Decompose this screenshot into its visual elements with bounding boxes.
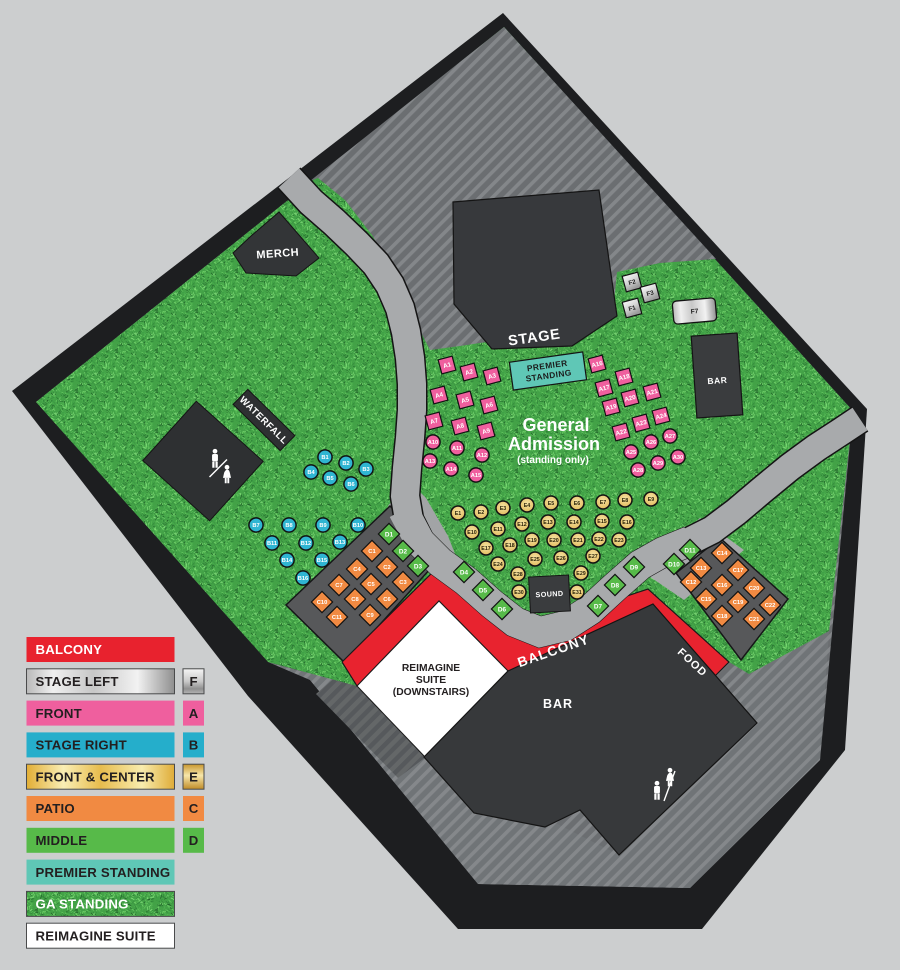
svg-text:E18: E18 [505,543,514,549]
svg-text:(standing only): (standing only) [517,455,589,466]
svg-text:General: General [522,415,589,435]
svg-text:B9: B9 [319,523,326,529]
svg-text:E14: E14 [569,520,578,526]
svg-text:C21: C21 [749,617,760,623]
svg-text:B5: B5 [326,476,333,482]
svg-text:A: A [189,706,199,721]
svg-text:E7: E7 [600,500,607,506]
svg-text:SOUND: SOUND [535,589,563,599]
svg-text:C18: C18 [717,614,728,620]
svg-text:C20: C20 [749,586,760,592]
svg-text:C14: C14 [717,551,728,557]
svg-text:C15: C15 [701,597,712,603]
svg-text:REIMAGINE: REIMAGINE [402,663,460,674]
svg-text:D: D [189,833,199,848]
svg-text:FRONT: FRONT [36,706,82,721]
svg-text:C9: C9 [366,613,374,619]
svg-text:E25: E25 [530,557,539,563]
svg-text:B11: B11 [267,541,277,547]
svg-text:C12: C12 [686,580,697,586]
svg-text:BALCONY: BALCONY [36,642,103,657]
svg-text:SUITE: SUITE [416,675,446,686]
svg-text:D2: D2 [399,548,408,555]
svg-text:D6: D6 [498,606,507,613]
svg-text:D4: D4 [460,569,469,576]
svg-text:C2: C2 [383,565,390,571]
svg-text:BAR: BAR [543,697,573,711]
svg-text:E: E [189,769,198,784]
svg-text:C13: C13 [696,566,707,572]
svg-text:E26: E26 [556,556,565,562]
svg-text:D11: D11 [684,547,696,554]
svg-text:A29: A29 [653,461,663,467]
svg-text:E22: E22 [594,537,603,543]
svg-text:B14: B14 [282,558,293,564]
svg-text:D7: D7 [594,603,603,610]
svg-text:C5: C5 [367,582,375,588]
svg-text:B12: B12 [301,541,311,547]
svg-text:C11: C11 [332,615,343,621]
svg-text:BAR: BAR [707,375,728,386]
svg-text:C10: C10 [317,600,328,606]
svg-text:FRONT & CENTER: FRONT & CENTER [36,769,156,784]
svg-text:C19: C19 [733,600,744,606]
svg-text:E2: E2 [478,510,485,516]
svg-text:STAGE RIGHT: STAGE RIGHT [36,738,127,753]
svg-text:E11: E11 [493,527,502,533]
svg-text:E15: E15 [597,519,606,525]
svg-text:A27: A27 [665,434,675,440]
svg-text:E6: E6 [574,501,581,507]
svg-text:Admission: Admission [508,434,600,454]
svg-text:F: F [189,674,197,689]
svg-text:E12: E12 [517,522,526,528]
svg-text:C8: C8 [351,597,359,603]
svg-text:E31: E31 [572,590,581,596]
svg-text:C6: C6 [383,597,391,603]
svg-text:C: C [189,801,199,816]
svg-text:C17: C17 [733,568,744,574]
svg-text:(DOWNSTAIRS): (DOWNSTAIRS) [393,687,469,698]
svg-text:PREMIER STANDING: PREMIER STANDING [36,865,171,880]
svg-text:PATIO: PATIO [36,801,75,816]
svg-text:A30: A30 [673,455,683,461]
svg-text:E3: E3 [500,506,507,512]
svg-text:E19: E19 [527,538,536,544]
svg-text:A15: A15 [471,473,481,479]
svg-text:D10: D10 [668,561,680,568]
svg-text:E21: E21 [573,538,582,544]
svg-text:E13: E13 [543,520,552,526]
svg-text:B2: B2 [342,461,349,467]
svg-text:C16: C16 [717,583,728,589]
svg-text:B6: B6 [347,482,354,488]
svg-text:D3: D3 [414,563,423,570]
svg-text:B: B [189,738,199,753]
svg-text:E4: E4 [524,503,531,509]
svg-text:E29: E29 [576,571,585,577]
svg-text:E9: E9 [648,497,655,503]
svg-text:E8: E8 [622,498,629,504]
svg-text:B3: B3 [362,467,369,473]
svg-text:D8: D8 [611,582,620,589]
svg-text:D9: D9 [630,564,639,571]
svg-text:C4: C4 [353,567,361,573]
svg-text:B15: B15 [317,558,327,564]
svg-text:E16: E16 [622,520,631,526]
svg-text:C1: C1 [368,549,376,555]
svg-text:F7: F7 [690,308,699,316]
svg-text:E5: E5 [548,501,555,507]
svg-text:E17: E17 [481,546,490,552]
svg-text:STAGE LEFT: STAGE LEFT [36,674,119,689]
svg-text:A26: A26 [646,440,656,446]
svg-text:A11: A11 [452,446,462,452]
svg-text:E28: E28 [513,572,522,578]
svg-text:MIDDLE: MIDDLE [36,833,88,848]
svg-text:A10: A10 [428,440,438,446]
svg-text:E30: E30 [514,590,523,596]
svg-text:B13: B13 [335,540,345,546]
svg-text:B1: B1 [321,455,328,461]
svg-text:A12: A12 [477,453,487,459]
svg-text:D5: D5 [479,587,488,594]
svg-text:E10: E10 [467,530,476,536]
svg-text:D1: D1 [385,531,394,538]
svg-text:E24: E24 [493,562,502,568]
svg-text:E20: E20 [549,538,558,544]
svg-text:A28: A28 [633,468,643,474]
svg-text:B7: B7 [252,523,259,529]
svg-text:A14: A14 [446,467,457,473]
svg-text:GA STANDING: GA STANDING [36,897,129,912]
svg-text:A25: A25 [626,450,636,456]
svg-text:REIMAGINE SUITE: REIMAGINE SUITE [36,928,156,943]
svg-text:B16: B16 [298,576,308,582]
svg-text:E23: E23 [614,538,623,544]
svg-text:E27: E27 [588,554,597,560]
svg-text:A13: A13 [425,459,435,465]
svg-text:E1: E1 [455,511,462,517]
svg-text:C3: C3 [399,580,407,586]
svg-text:B8: B8 [285,523,292,529]
svg-text:C22: C22 [765,603,776,609]
svg-text:C7: C7 [335,583,342,589]
svg-text:B4: B4 [307,470,315,476]
svg-text:B10: B10 [353,523,363,529]
